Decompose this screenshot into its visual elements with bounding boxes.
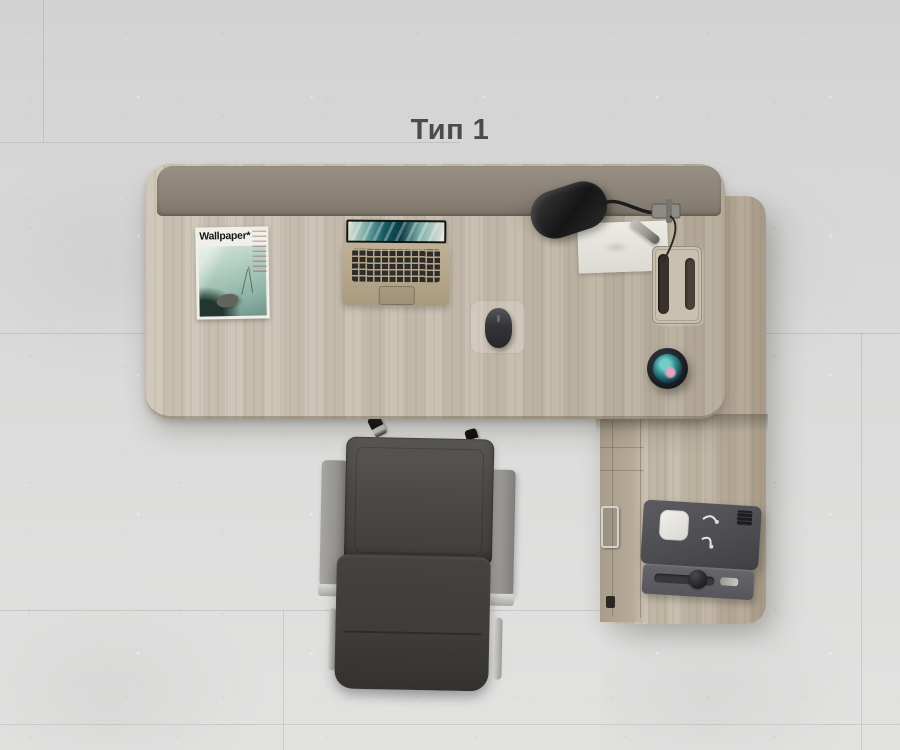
- smart-speaker: [647, 348, 688, 389]
- tile-seam: [861, 333, 862, 750]
- laptop-screen: [346, 220, 446, 244]
- chair-seat: [334, 554, 491, 691]
- office-chair: [313, 410, 519, 698]
- speaker-display: [653, 354, 682, 383]
- tile-seam: [0, 333, 148, 334]
- drawer-seam: [600, 470, 644, 471]
- mouse: [485, 308, 512, 348]
- printer-tray: [641, 563, 755, 600]
- laptop-deck: [342, 243, 451, 307]
- room-scene: Тип 1: [0, 0, 900, 750]
- drawer-handle: [601, 506, 619, 548]
- drawer-seam: [600, 447, 644, 448]
- type-label: Тип 1: [0, 114, 900, 147]
- tile-seam: [0, 724, 900, 725]
- tile-seam: [283, 610, 284, 750]
- chair-backrest: [344, 437, 495, 566]
- laptop-keyboard: [352, 249, 440, 283]
- desk-lamp-arm: [520, 178, 720, 328]
- tile-seam: [762, 333, 900, 334]
- magazine-text-lines: [252, 230, 267, 274]
- printer-cables-icon: [640, 499, 763, 566]
- laptop-wallpaper: [348, 222, 444, 242]
- laptop-trackpad: [379, 286, 415, 305]
- printer-knob: [688, 569, 708, 589]
- printer: [638, 499, 764, 604]
- printer-latch: [720, 577, 738, 586]
- magazine: Wallpaper*: [195, 226, 270, 319]
- laptop: [342, 220, 451, 307]
- chair-sled-right: [493, 618, 502, 680]
- cabinet-foot: [606, 596, 615, 608]
